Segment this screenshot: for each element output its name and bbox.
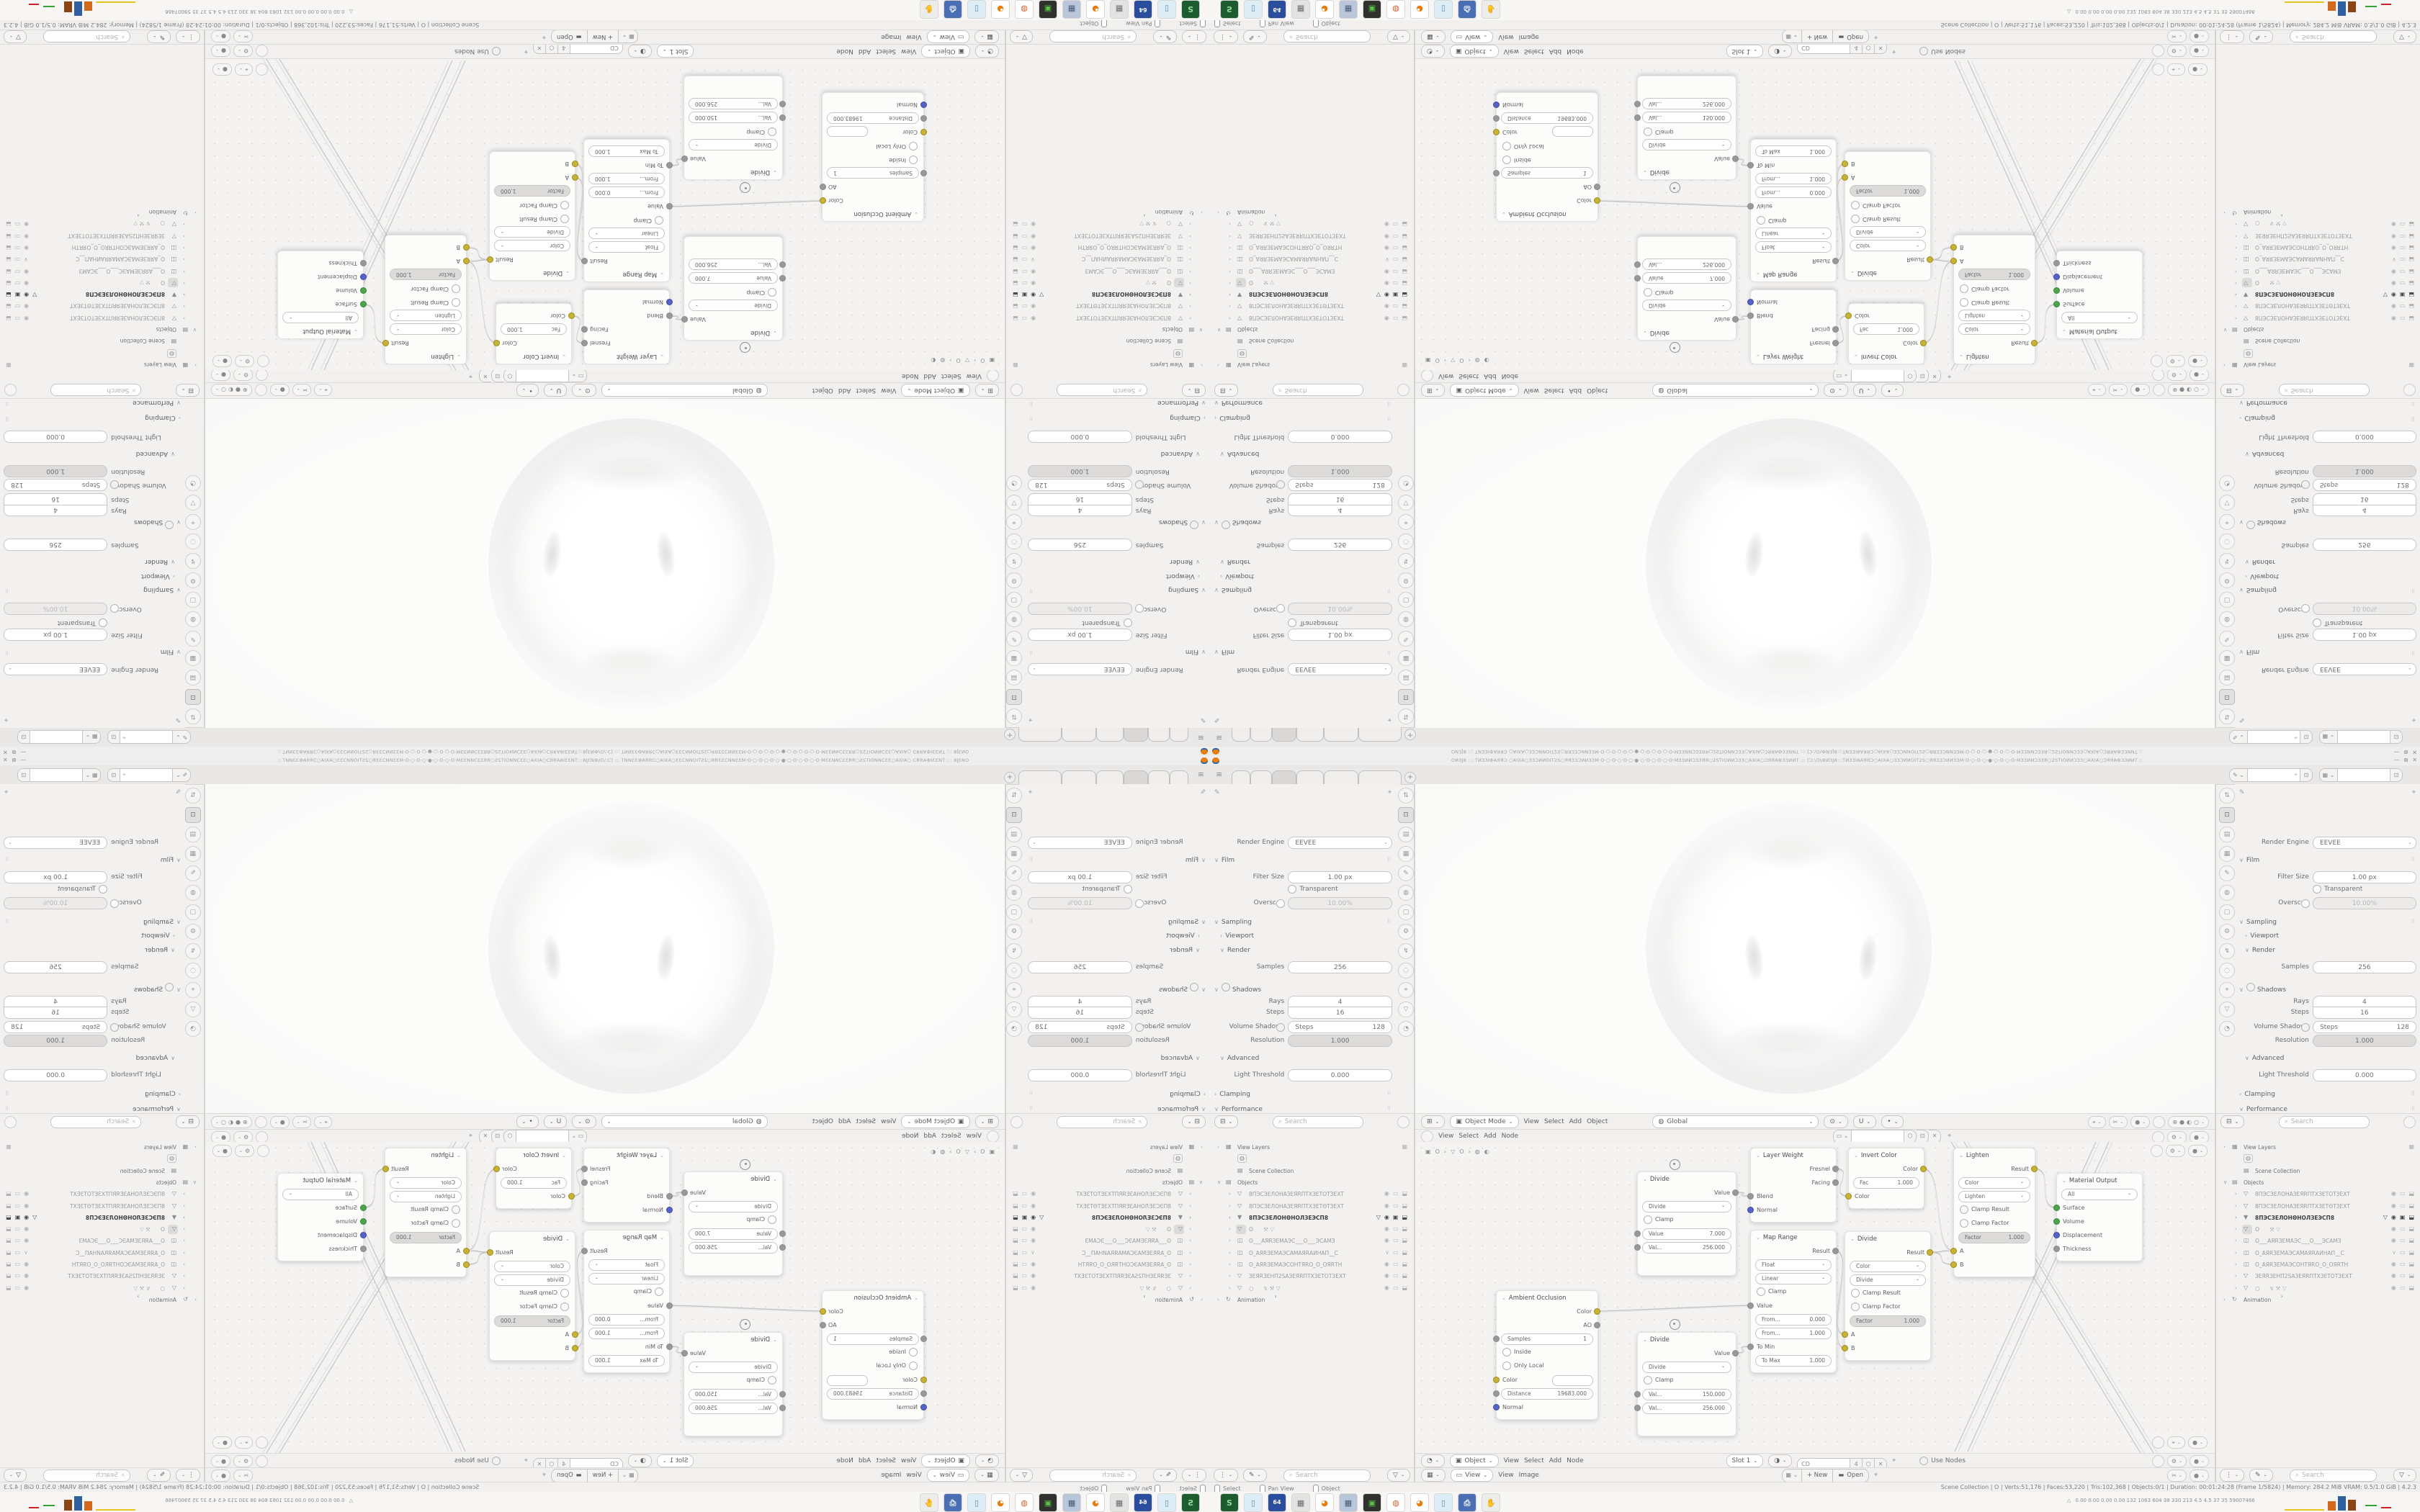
- node-title[interactable]: ⌄Invert Color: [496, 349, 571, 364]
- outliner-item[interactable]: ›▽ЗЕЯRЗЕНП2SАЗЕЯRПТХЗЕТОТЗЕХТ◉▭⬓: [0, 230, 204, 241]
- taskbar-app-icon-0[interactable]: S: [1181, 0, 1200, 19]
- disclosure-arrow[interactable]: ›: [1217, 1297, 1219, 1302]
- node-row-inside[interactable]: Inside: [823, 152, 923, 166]
- props-tab-icon-2[interactable]: ▤: [185, 670, 201, 685]
- new-datablock-button[interactable]: ⊡: [2390, 730, 2403, 744]
- node-checkbox[interactable]: Clamp Result: [496, 1287, 569, 1297]
- node-field[interactable]: From...0.000: [588, 1314, 665, 1326]
- socket-in[interactable]: [2053, 260, 2060, 266]
- overlay-circle[interactable]: [256, 45, 268, 57]
- disclosure-arrow[interactable]: ∨: [1199, 327, 1203, 332]
- filter-icon[interactable]: ✎⌄: [1153, 1469, 1177, 1482]
- outliner-item[interactable]: ›▼8ПЭСЗЕЛОНΘНОЛЗЕЭСП8▽◉▣⬓: [0, 1212, 204, 1224]
- node-field[interactable]: To Max1.000: [588, 1355, 665, 1367]
- socket-in[interactable]: [1747, 203, 1754, 210]
- node-select[interactable]: Divide⌄: [689, 1362, 778, 1373]
- outliner-item[interactable]: ›▽8ПЭСЗЕЛОНАЗЕЯRПТХЗЕТΘТЗЕХТ◉▭⬓: [2216, 1201, 2420, 1212]
- disclosure-arrow[interactable]: ›: [1189, 1286, 1191, 1291]
- visibility-icons[interactable]: ◉▭⬓: [2391, 233, 2414, 239]
- shading-sphere-icon[interactable]: ◐: [228, 387, 233, 393]
- disclosure-arrow[interactable]: ›: [194, 210, 197, 215]
- outliner-search-input[interactable]: ⌕Search: [1049, 31, 1137, 43]
- socket-in[interactable]: [666, 1344, 673, 1350]
- visibility-icons[interactable]: ∨▭⬓: [1013, 256, 1035, 262]
- unlink-button[interactable]: ✕: [1929, 1130, 1941, 1143]
- editor-type-icon[interactable]: ⊟ ⌄: [1214, 384, 1238, 397]
- node-lighten[interactable]: ⌄LightenResultColor⌄Lighten⌄Clamp Result…: [385, 1148, 467, 1277]
- menu-node[interactable]: Node: [902, 1133, 919, 1140]
- section-label[interactable]: ∨Sampling: [2239, 919, 2277, 926]
- slot-dropdown[interactable]: Slot 1 ⌄: [1726, 45, 1764, 58]
- checkbox-overscan[interactable]: [110, 604, 119, 613]
- node-field[interactable]: To Max1.000: [588, 145, 665, 157]
- shading-sphere-icon[interactable]: ●: [236, 1120, 241, 1125]
- checkbox-overscan[interactable]: [2301, 604, 2310, 613]
- props-tab-icon-9[interactable]: ◌: [1006, 534, 1022, 549]
- section-label[interactable]: ∨Advanced: [136, 1056, 175, 1062]
- menu-view[interactable]: View: [967, 373, 982, 379]
- node-row-from-[interactable]: From...1.000: [584, 1327, 669, 1341]
- overlay-toggle-icon[interactable]: ✂⌄: [292, 384, 312, 396]
- outliner-item[interactable]: ›◫O_АЯRЗЕМАЭСОНТЯRО_O_ОЯRТН◉▭⬓: [1210, 1259, 1413, 1271]
- visibility-icons[interactable]: ◉▭⬓: [1013, 221, 1036, 227]
- props-tab-icon-3[interactable]: ▦: [1006, 650, 1022, 666]
- socket-in[interactable]: [1950, 244, 1957, 251]
- socket-out[interactable]: [581, 1179, 588, 1186]
- socket-out[interactable]: [487, 256, 493, 263]
- gizmo-icon[interactable]: ✂ ⌄: [2167, 1470, 2187, 1482]
- node-field[interactable]: From...1.000: [588, 1328, 665, 1339]
- props-tab-icon-1[interactable]: ⊡: [2219, 689, 2235, 705]
- taskbar-app-icon-11[interactable]: ✋: [1482, 1493, 1500, 1512]
- socket-in[interactable]: [2053, 1205, 2060, 1211]
- node-select[interactable]: Lighten⌄: [390, 1191, 462, 1202]
- gizmo-icon[interactable]: ⚙ ⌄: [235, 355, 254, 367]
- filter-icon[interactable]: ✎⌄: [1243, 30, 1267, 43]
- shading-mode-group[interactable]: ⊕●◐○⌄: [211, 1116, 252, 1128]
- props-tab-icon-0[interactable]: ⇅: [185, 708, 201, 724]
- props-tab-icon-2[interactable]: ▤: [1398, 827, 1414, 842]
- color-swatch[interactable]: [1552, 1375, 1593, 1386]
- taskbar-app-icon-6[interactable]: ▣: [1039, 1493, 1057, 1512]
- editor-icon[interactable]: [1421, 370, 1433, 382]
- visibility-icons[interactable]: ◉▭⬓: [2391, 1226, 2414, 1232]
- datablock-icon[interactable]: ✎ ⌄: [172, 768, 191, 782]
- menu-select[interactable]: Select: [1524, 1458, 1544, 1464]
- node-row-divide[interactable]: Divide⌄: [1845, 225, 1930, 238]
- socket-in[interactable]: [1845, 312, 1852, 319]
- disclosure-arrow[interactable]: ›: [1201, 362, 1203, 367]
- node-select[interactable]: Float⌄: [588, 1259, 665, 1271]
- props-tab-icon-12[interactable]: ◔: [185, 475, 201, 491]
- outliner-item[interactable]: ◍: [1007, 347, 1210, 359]
- outliner-item[interactable]: ∨▤Objects: [2216, 323, 2420, 335]
- pin-icon[interactable]: ⌖: [1028, 716, 1032, 722]
- node-row-linear[interactable]: Linear⌄: [584, 226, 669, 240]
- section-label[interactable]: ∨Advanced: [136, 450, 175, 456]
- node-checkbox[interactable]: Inside: [1502, 1346, 1592, 1356]
- node-field[interactable]: Factor1.000: [1958, 269, 2030, 280]
- field-light-threshold[interactable]: 0.000: [2313, 1069, 2416, 1081]
- overlay-circle[interactable]: [256, 369, 268, 381]
- node-field[interactable]: Fac1.000: [1853, 1177, 1919, 1189]
- node-row-clamp[interactable]: Clamp: [684, 284, 782, 298]
- section-label[interactable]: ∨Shadows: [1214, 518, 1261, 529]
- node-select[interactable]: Float⌄: [1755, 1259, 1832, 1271]
- menu-view[interactable]: View: [1438, 1133, 1453, 1140]
- visibility-icons[interactable]: ◉▭⬓: [2391, 1203, 2414, 1209]
- outliner-item[interactable]: ›◫O_АЯRЗЕМАЭСОНТЯRО_O_ОЯRТН◉▭⬓: [0, 1259, 204, 1271]
- new-material-button[interactable]: ⊡: [491, 369, 503, 383]
- menu-add[interactable]: Add: [838, 387, 851, 394]
- props-tab-icon-11[interactable]: ▽: [1006, 495, 1022, 510]
- node-row-inside[interactable]: Inside: [823, 1346, 923, 1360]
- props-tab-icon-11[interactable]: ▽: [1398, 1002, 1414, 1017]
- field-overscan[interactable]: 10.00%: [1288, 603, 1391, 615]
- node-row-color[interactable]: Color⌄: [385, 1176, 466, 1190]
- field-rays[interactable]: 4: [4, 504, 107, 516]
- node-row-val-[interactable]: Val...256.000: [684, 96, 782, 110]
- outliner-item[interactable]: ›◫O_АЯRЗЕМАЭСОНТЯRО_O_ОЯRТН◉▭⬓: [2216, 1259, 2420, 1271]
- outliner-item[interactable]: ›◫O_АЯRЗЕМАЭСОНТЯRО_O_ОЯRТН◉▭⬓: [0, 241, 204, 253]
- props-tab-icon-12[interactable]: ◔: [1398, 475, 1414, 491]
- workspace-tab[interactable]: [1272, 727, 1296, 742]
- node-select[interactable]: Lighten⌄: [390, 310, 462, 321]
- disclosure-arrow[interactable]: ›: [1189, 256, 1191, 261]
- disclosure-arrow[interactable]: ›: [1189, 269, 1191, 274]
- outliner-item[interactable]: ›▦View Layers▦: [2216, 1142, 2420, 1153]
- workspace-tab[interactable]: [1358, 770, 1402, 785]
- socket-in[interactable]: [1493, 1404, 1500, 1410]
- props-tab-icon-3[interactable]: ▦: [185, 846, 201, 862]
- node-row-float[interactable]: Float⌄: [584, 1259, 669, 1272]
- node-row-clamp-result[interactable]: Clamp Result: [1954, 1204, 2035, 1218]
- disclosure-arrow[interactable]: ›: [1201, 1297, 1203, 1302]
- section-label[interactable]: ∨Film: [1214, 648, 1234, 654]
- visibility-icons[interactable]: ▽◉▣⬓: [1013, 1215, 1044, 1220]
- outliner-item[interactable]: ›▽8ПЭСЗЕЛОНАЗЕЯRПТХЗЕТОТЗЕХТ◉▭⬓: [1210, 312, 1413, 323]
- node-select[interactable]: Divide⌄: [1642, 300, 1731, 311]
- node-layer-weight[interactable]: ⌄Layer WeightFresnelFacingBlendNormal: [1750, 289, 1837, 364]
- socket-in[interactable]: [1747, 299, 1754, 305]
- socket-in[interactable]: [779, 275, 786, 282]
- outliner-item[interactable]: ›◫O_АЯRЗЕМАЭСОНТЯRО_O_ОЯRТН◉▭⬓: [1007, 1259, 1210, 1271]
- node-checkbox[interactable]: Clamp: [1644, 1374, 1730, 1385]
- snap-icon[interactable]: U⌄: [1853, 384, 1876, 397]
- node-select[interactable]: Divide⌄: [689, 139, 778, 150]
- node-checkbox[interactable]: Clamp Factor: [496, 201, 569, 211]
- datablock-icon[interactable]: ▦ ⌄: [82, 768, 101, 782]
- material-icon-dropdown[interactable]: ◑ ⌄: [628, 1454, 652, 1467]
- disclosure-arrow[interactable]: ›: [183, 245, 185, 250]
- socket-in[interactable]: [463, 244, 470, 251]
- gizmo-icon[interactable]: ⚙ ⌄: [2166, 1145, 2185, 1157]
- node-material-output[interactable]: ⌄Material OutputAll⌄SurfaceVolumeDisplac…: [2056, 251, 2143, 339]
- outliner-item[interactable]: ∨▤Objects: [1007, 323, 1210, 335]
- node-row-fac[interactable]: Fac1.000: [496, 322, 571, 336]
- outliner-item[interactable]: ›▼8ПЭСЗЕЛОНΘНОЛЗЕЭСП8▽◉▣⬓: [1007, 288, 1210, 300]
- node-row-color[interactable]: Color⌄: [490, 238, 575, 252]
- visibility-icons[interactable]: ◉▭⬓: [1384, 1261, 1407, 1267]
- disclosure-arrow[interactable]: ∨: [193, 327, 197, 332]
- overlay-icon[interactable]: ● ⌄: [211, 30, 230, 42]
- node-row-divide[interactable]: Divide⌄: [684, 138, 782, 151]
- section-label[interactable]: ∨Sampling: [2239, 586, 2277, 593]
- disclosure-arrow[interactable]: ›: [2235, 1204, 2237, 1209]
- props-tab-icon-12[interactable]: ◔: [1006, 1021, 1022, 1037]
- socket-out[interactable]: [1920, 1166, 1927, 1172]
- node-row-divide[interactable]: Divide⌄: [684, 298, 782, 312]
- socket-in[interactable]: [2053, 301, 2060, 307]
- socket-in[interactable]: [1747, 312, 1754, 319]
- filter-dropdown[interactable]: ▽⌄: [4, 30, 27, 43]
- node-group-gizmo[interactable]: [740, 1159, 750, 1170]
- node-title[interactable]: ⌄Lighten: [1954, 349, 2035, 364]
- props-tab-icon-6[interactable]: ▢: [1006, 592, 1022, 608]
- props-tab-icon-12[interactable]: ◔: [2219, 475, 2235, 491]
- checkbox-transparent[interactable]: Transparent: [1082, 618, 1131, 627]
- checkbox-overscan[interactable]: [1276, 899, 1285, 908]
- visibility-icons[interactable]: ▦: [6, 362, 12, 368]
- restore-button[interactable]: ⧉: [12, 749, 17, 755]
- viewport-3d[interactable]: [1415, 399, 2215, 728]
- datablock-name-field[interactable]: [30, 730, 82, 744]
- editor-type-dropdown[interactable]: ⊞ ⌄: [1421, 1115, 1445, 1128]
- outliner-item[interactable]: ›▽O⚒ ▽◉▭⬓: [1210, 276, 1413, 288]
- disclosure-arrow[interactable]: ›: [2235, 280, 2237, 285]
- taskbar-app-icon-2[interactable]: 64: [1134, 0, 1152, 19]
- workspace-tab[interactable]: [1124, 727, 1148, 742]
- filter-icon[interactable]: ⋮⌄: [2220, 30, 2244, 43]
- props-tab-icon-8[interactable]: ↯: [1398, 943, 1414, 959]
- props-tab-icon-1[interactable]: ⊡: [2219, 807, 2235, 823]
- node-row-clamp-result[interactable]: Clamp Result: [1954, 294, 2035, 308]
- new-datablock-button[interactable]: ⊡: [17, 730, 30, 744]
- field-steps[interactable]: 16: [2313, 1007, 2416, 1019]
- taskbar-app-icon-0[interactable]: S: [1220, 1493, 1239, 1512]
- outliner-item[interactable]: ›▽O⚒ ▽◉▭⬓: [0, 1224, 204, 1236]
- node-row-clamp-factor[interactable]: Clamp Factor: [490, 1301, 575, 1315]
- shading-sphere-icon[interactable]: ○: [221, 1120, 226, 1125]
- snap-icon[interactable]: ⚙ ⌄: [2167, 369, 2187, 381]
- snap-icon[interactable]: ⊙⌄: [1824, 1115, 1847, 1128]
- node-row-val-[interactable]: Val...150.000: [684, 110, 782, 124]
- props-tab-icon-8[interactable]: ↯: [1398, 553, 1414, 569]
- socket-in[interactable]: [920, 129, 927, 135]
- datablock-name-field[interactable]: ⌖: [2248, 730, 2300, 744]
- workspace-tab[interactable]: [1296, 770, 1324, 785]
- visibility-icons[interactable]: ◉▭⬓: [6, 1238, 29, 1243]
- props-tab-icon-1[interactable]: ⊡: [1398, 807, 1414, 823]
- new-datablock-button[interactable]: ⊡: [107, 768, 120, 782]
- node-title[interactable]: ⌄Layer Weight: [584, 1148, 669, 1163]
- props-tab-icon-0[interactable]: ⇅: [185, 788, 201, 804]
- socket-in[interactable]: [568, 312, 575, 319]
- node-checkbox[interactable]: Clamp: [690, 1214, 776, 1224]
- props-tab-icon-2[interactable]: ▤: [2219, 827, 2235, 842]
- socket-in[interactable]: [2053, 1218, 2060, 1225]
- visibility-icons[interactable]: ◉▭⬓: [2391, 1273, 2414, 1279]
- props-tab-icon-7[interactable]: ⚙: [2219, 572, 2235, 588]
- node-title[interactable]: ⌄Divide: [1845, 1232, 1930, 1246]
- node-row-fac[interactable]: Fac1.000: [496, 1176, 571, 1190]
- filter-dropdown[interactable]: ▽⌄: [1010, 1469, 1033, 1482]
- field-rays[interactable]: 4: [2313, 504, 2416, 516]
- outliner-item[interactable]: ›▽8ПЭСЗЕЛОНАЗЕЯRПТХЗЕТОТЗЕХТ◉▭⬓: [2216, 1189, 2420, 1200]
- visibility-icons[interactable]: ◉▭⬓: [1013, 1226, 1036, 1232]
- node-field[interactable]: From...1.000: [1755, 1328, 1832, 1339]
- visibility-icons[interactable]: ◉▭⬓: [1013, 1191, 1036, 1197]
- section-label[interactable]: ∨Render: [2245, 558, 2275, 564]
- socket-in[interactable]: [360, 1205, 367, 1211]
- node-field[interactable]: Val...150.000: [689, 112, 778, 123]
- socket-in[interactable]: [572, 161, 578, 167]
- node-field[interactable]: Factor1.000: [494, 1315, 570, 1327]
- editor-type-icon[interactable]: ⊟ ⌄: [176, 1115, 200, 1128]
- visibility-icons[interactable]: ◉▭⬓: [6, 1203, 29, 1209]
- field-filter-size[interactable]: 1.00 px: [1288, 871, 1391, 883]
- checkbox-transparent[interactable]: Transparent: [58, 885, 107, 894]
- outliner-item[interactable]: ›▽8ПЭСЗЕЛОНАЗЕЯRПТХЗЕТОТЗЕХТ◉▭⬓: [2216, 312, 2420, 323]
- field-light-threshold[interactable]: 0.000: [1288, 1069, 1391, 1081]
- menu-image[interactable]: Image: [1519, 1472, 1539, 1479]
- node-checkbox[interactable]: Clamp: [690, 1374, 776, 1385]
- props-tab-icon-4[interactable]: ✎: [1006, 865, 1022, 881]
- socket-in[interactable]: [920, 115, 927, 122]
- node-row-clamp[interactable]: Clamp: [584, 212, 669, 226]
- overlay-toggle-icon[interactable]: ⌖⌄: [2088, 1116, 2106, 1128]
- open-image-button[interactable]: ▬Open: [1833, 30, 1869, 44]
- node-row-from-[interactable]: From...1.000: [1751, 171, 1836, 185]
- use-nodes-checkbox[interactable]: Use Nodes: [454, 1457, 501, 1465]
- node-row-factor[interactable]: Factor1.000: [1845, 1315, 1930, 1328]
- disclosure-arrow[interactable]: ›: [183, 1215, 185, 1220]
- node-row-from-[interactable]: From...0.000: [584, 1313, 669, 1327]
- socket-out[interactable]: [1594, 184, 1600, 190]
- slot-dropdown[interactable]: Slot 1 ⌄: [657, 1454, 694, 1467]
- node-field[interactable]: Fac1.000: [1853, 323, 1919, 335]
- node-lighten[interactable]: ⌄LightenResultColor⌄Lighten⌄Clamp Result…: [1953, 235, 2035, 364]
- taskbar-app-icon-4[interactable]: ◕: [1315, 0, 1334, 19]
- node-row-clamp-factor[interactable]: Clamp Factor: [1845, 197, 1930, 211]
- disclosure-arrow[interactable]: ›: [183, 1286, 185, 1291]
- field-resolution[interactable]: 1.000: [2313, 465, 2416, 477]
- socket-out[interactable]: [1594, 1308, 1600, 1315]
- disclosure-arrow[interactable]: ›: [2235, 245, 2237, 250]
- node-checkbox[interactable]: Clamp: [1644, 127, 1730, 138]
- overlay-toggle-icon[interactable]: ●⌄: [270, 384, 290, 396]
- shading-sphere-icon[interactable]: ⊕: [243, 1120, 248, 1125]
- node-select[interactable]: All⌄: [282, 1189, 359, 1200]
- datablock-name-field[interactable]: [2338, 730, 2390, 744]
- field-resolution[interactable]: 1.000: [1028, 465, 1131, 477]
- shading-chevron[interactable]: ⌄: [2201, 1120, 2205, 1125]
- field-overscan[interactable]: 10.00%: [4, 897, 107, 909]
- options-chevron[interactable]: [4, 384, 17, 397]
- outliner-item[interactable]: ›◫O_АЯRЗЕМАЭСАМАЯRАИНАП__С∨▭⬓: [1007, 253, 1210, 264]
- node-row-value[interactable]: Value7.000: [1638, 1228, 1736, 1241]
- node-select[interactable]: Divide⌄: [494, 1274, 570, 1286]
- taskbar-app-icon-9[interactable]: ▯: [967, 1493, 986, 1512]
- fake-user-shield[interactable]: ⬡: [1904, 369, 1917, 383]
- outliner-item[interactable]: ›▽O⚒ ▽◉▭⬓: [1007, 1224, 1210, 1236]
- node-title[interactable]: ⌄Invert Color: [1849, 1148, 1924, 1163]
- material-datablock[interactable]: ▭ ⌄⬡⊡✕: [479, 1130, 587, 1143]
- outliner-search-input[interactable]: ⌕Search: [43, 1470, 130, 1482]
- socket-in[interactable]: [1493, 115, 1500, 122]
- section-label[interactable]: ∨Advanced: [1220, 1056, 1259, 1062]
- menu-view[interactable]: View: [967, 1133, 982, 1140]
- material-name-field[interactable]: [1852, 1130, 1904, 1143]
- outliner-item[interactable]: ›▽O⚒ ▽◉▭⬓: [1210, 1224, 1413, 1236]
- node-row-clamp-factor[interactable]: Clamp Factor: [1954, 281, 2035, 294]
- shading-chevron[interactable]: ⌄: [215, 388, 219, 392]
- visibility-icons[interactable]: ◉▭⬓: [1384, 1226, 1407, 1232]
- section-label[interactable]: ›Viewport: [2245, 933, 2279, 940]
- overlay-icon[interactable]: ● ⌄: [212, 1436, 232, 1449]
- node-title[interactable]: ⌄Divide: [1845, 266, 1930, 280]
- checkbox-volume-shadows[interactable]: [110, 1023, 119, 1032]
- visibility-icons[interactable]: ◉▭⬓: [1384, 280, 1407, 286]
- gizmo-toggle[interactable]: [2153, 384, 2165, 396]
- taskbar-app-icon-7[interactable]: ◍: [1386, 1493, 1405, 1512]
- material-icon-dropdown[interactable]: ◑ ⌄: [1768, 1454, 1792, 1467]
- socket-in[interactable]: [920, 1390, 927, 1397]
- overlay-icon[interactable]: ● ⌄: [2190, 1455, 2209, 1467]
- visibility-icons[interactable]: ◉▭⬓: [1384, 1203, 1407, 1209]
- node-title[interactable]: ⌄Ambient Occlusion: [1497, 1291, 1597, 1305]
- shading-sphere-icon[interactable]: ⊕: [2172, 1120, 2177, 1125]
- node-row-clamp-result[interactable]: Clamp Result: [385, 1204, 466, 1218]
- node-select[interactable]: Color⌄: [390, 323, 462, 335]
- workspace-tab[interactable]: [1324, 727, 1358, 742]
- props-tab-icon-1[interactable]: ⊡: [1006, 807, 1022, 823]
- visibility-icons[interactable]: ◉▭⬓: [1013, 1273, 1036, 1279]
- snap-icon[interactable]: ⊙⌄: [1824, 384, 1847, 397]
- node-row-from-[interactable]: From...1.000: [584, 171, 669, 185]
- search-input[interactable]: ⌕Search: [1057, 384, 1147, 397]
- outliner-item[interactable]: ›▽8ПЭСЗЕЛОНАЗЕЯRПТХЗЕТΘТЗЕХТ◉▭⬓: [1210, 1201, 1413, 1212]
- overlay-toggle-icon[interactable]: ⌖⌄: [2088, 384, 2106, 396]
- node-group-gizmo[interactable]: [740, 1319, 750, 1330]
- taskbar-app-icon-9[interactable]: ▯: [1434, 1493, 1453, 1512]
- menu-select[interactable]: Select: [1458, 373, 1479, 379]
- material-icon-dropdown[interactable]: ◑ ⌄: [1768, 45, 1792, 58]
- visibility-icons[interactable]: ◉▭⬓: [1384, 245, 1407, 251]
- menu-node[interactable]: Node: [1502, 373, 1519, 379]
- field-light-threshold[interactable]: 0.000: [2313, 431, 2416, 443]
- node-checkbox[interactable]: Clamp Result: [1960, 298, 2029, 308]
- socket-out[interactable]: [493, 340, 500, 346]
- visibility-icons[interactable]: ◉▭⬓: [6, 221, 29, 227]
- outliner-item[interactable]: ▤Scene Collection: [0, 1166, 204, 1177]
- socket-in[interactable]: [779, 1391, 786, 1398]
- socket-in[interactable]: [779, 1244, 786, 1251]
- socket-in[interactable]: [2053, 1232, 2060, 1238]
- node-field[interactable]: From...0.000: [1755, 1314, 1832, 1326]
- props-tab-icon-7[interactable]: ⚙: [1398, 924, 1414, 940]
- gizmo-icon[interactable]: ⚙ ⌄: [2167, 45, 2187, 57]
- node-select[interactable]: Divide⌄: [1642, 1362, 1731, 1373]
- outliner-item[interactable]: ∨▤Objects: [0, 323, 204, 335]
- disclosure-arrow[interactable]: ›: [2235, 256, 2237, 261]
- node-row-to-max[interactable]: To Max1.000: [1751, 1354, 1836, 1368]
- datablock-name-field[interactable]: ⌖: [120, 768, 172, 782]
- node-row-val-[interactable]: Val...256.000: [1638, 1402, 1736, 1416]
- outliner-item[interactable]: ›↻Animation²: [1210, 1295, 1413, 1306]
- node-field[interactable]: From...0.000: [588, 186, 665, 198]
- node-select[interactable]: Divide⌄: [1642, 139, 1731, 150]
